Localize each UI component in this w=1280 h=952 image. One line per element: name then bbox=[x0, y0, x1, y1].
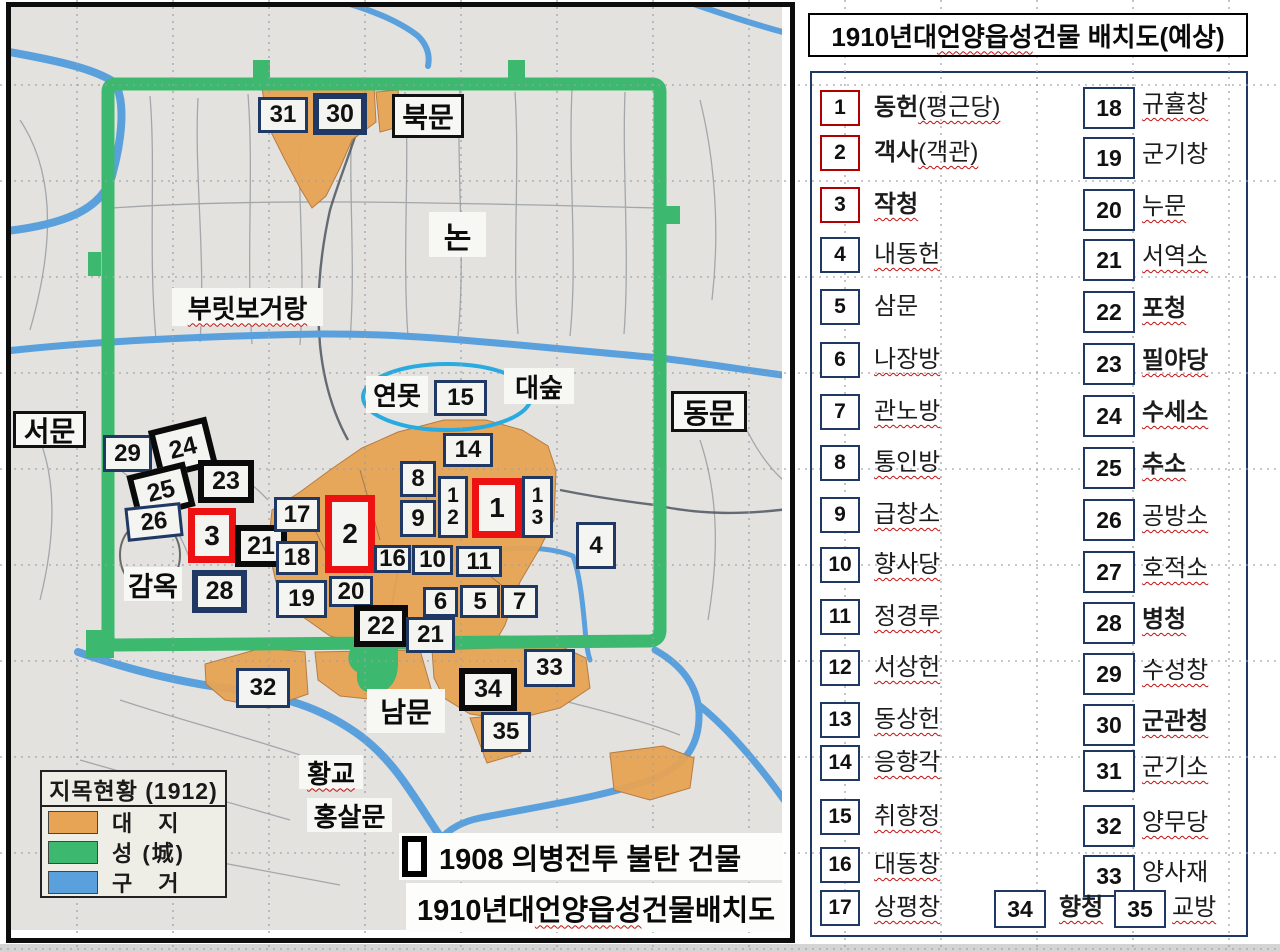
page-bottom-strip bbox=[0, 944, 1280, 952]
building-name: 나장방 bbox=[874, 346, 940, 373]
panel-title: 1910년대 언양읍성 건물 배치도(예상) bbox=[808, 13, 1248, 57]
panel-title-underlined: 언양읍성 bbox=[937, 17, 1033, 54]
caption-burned-buildings: 1908 의병전투 불탄 건물 bbox=[399, 833, 783, 880]
list-number-17: 17 bbox=[820, 890, 860, 926]
list-number-9: 9 bbox=[820, 497, 860, 533]
list-number-13: 13 bbox=[820, 702, 860, 738]
building-name: 규휼창 bbox=[1142, 91, 1208, 118]
map-box-26: 26 bbox=[124, 502, 183, 542]
list-number-24: 24 bbox=[1083, 395, 1135, 437]
list-label-32: 양무당 bbox=[1142, 803, 1208, 843]
list-number-2: 2 bbox=[820, 135, 860, 171]
list-number-29: 29 bbox=[1083, 653, 1135, 695]
list-label-21: 서역소 bbox=[1142, 237, 1208, 277]
map-label-동문: 동문 bbox=[671, 391, 747, 432]
list-label-23: 필야당 bbox=[1142, 341, 1208, 381]
list-number-12: 12 bbox=[820, 650, 860, 686]
legend-title: 지목현황 (1912) bbox=[42, 772, 225, 807]
map-box-4: 4 bbox=[576, 522, 616, 569]
building-name: 서역소 bbox=[1142, 243, 1208, 270]
list-label-34: 향청 bbox=[1059, 888, 1103, 928]
list-label-28: 병청 bbox=[1142, 600, 1186, 640]
list-label-6: 나장방 bbox=[874, 340, 940, 380]
legend-swatch bbox=[48, 811, 98, 834]
map-label-북문: 북문 bbox=[392, 94, 464, 138]
map-label-홍살문: 홍살문 bbox=[307, 798, 392, 832]
legend-row-구 거: 구 거 bbox=[42, 867, 225, 897]
building-name: 내동헌 bbox=[874, 241, 940, 268]
map-label-부릿보거랑: 부릿보거랑 bbox=[172, 288, 323, 326]
map-box-22: 22 bbox=[354, 605, 408, 647]
building-name: 누문 bbox=[1142, 193, 1186, 220]
building-name: 삼문 bbox=[874, 293, 918, 320]
list-number-35: 35 bbox=[1114, 890, 1166, 928]
list-number-27: 27 bbox=[1083, 551, 1135, 593]
map-box-32: 32 bbox=[236, 668, 290, 708]
list-number-5: 5 bbox=[820, 289, 860, 325]
building-name: 교방 bbox=[1172, 894, 1216, 921]
building-name: 객사 bbox=[874, 139, 918, 166]
building-name: 군기소 bbox=[1142, 754, 1208, 781]
list-number-31: 31 bbox=[1083, 750, 1135, 792]
map-box-33: 33 bbox=[524, 649, 575, 687]
list-label-7: 관노방 bbox=[874, 392, 940, 432]
building-name: 향사당 bbox=[874, 551, 940, 578]
building-name: 수성창 bbox=[1142, 657, 1208, 684]
list-number-1: 1 bbox=[820, 90, 860, 126]
building-name: 병청 bbox=[1142, 606, 1186, 633]
list-number-6: 6 bbox=[820, 342, 860, 378]
building-name: 상평창 bbox=[874, 894, 940, 921]
map-label-감옥: 감옥 bbox=[124, 567, 182, 601]
list-number-21: 21 bbox=[1083, 239, 1135, 281]
map-label-text: 논 bbox=[444, 213, 472, 257]
list-label-15: 취향정 bbox=[874, 797, 940, 837]
map-label-대숲: 대숲 bbox=[504, 368, 574, 404]
list-number-11: 11 bbox=[820, 599, 860, 635]
list-label-31: 군기소 bbox=[1142, 748, 1208, 788]
building-name: 추소 bbox=[1142, 451, 1186, 478]
list-number-30: 30 bbox=[1083, 704, 1135, 746]
list-number-28: 28 bbox=[1083, 602, 1135, 644]
list-label-8: 통인방 bbox=[874, 443, 940, 483]
map-box-15: 15 bbox=[434, 380, 487, 416]
map-box-35: 35 bbox=[481, 712, 531, 752]
list-label-20: 누문 bbox=[1142, 187, 1186, 227]
map-box-13: 1 3 bbox=[522, 476, 553, 538]
list-number-18: 18 bbox=[1083, 87, 1135, 129]
map-box-6: 6 bbox=[423, 587, 458, 617]
map-box-29: 29 bbox=[103, 435, 152, 472]
list-label-18: 규휼창 bbox=[1142, 85, 1208, 125]
list-label-11: 정경루 bbox=[874, 597, 940, 637]
map-box-34: 34 bbox=[459, 668, 517, 711]
list-number-22: 22 bbox=[1083, 291, 1135, 333]
list-number-7: 7 bbox=[820, 394, 860, 430]
building-name: 작청 bbox=[874, 191, 918, 218]
list-label-30: 군관청 bbox=[1142, 702, 1208, 742]
map-box-9: 9 bbox=[400, 500, 436, 537]
building-name: 동헌 bbox=[874, 94, 918, 121]
map-label-text: 남문 bbox=[380, 691, 432, 731]
caption-map-title: 1910년대 언양읍성 건물배치도 bbox=[406, 883, 786, 932]
list-number-10: 10 bbox=[820, 547, 860, 583]
list-label-5: 삼문 bbox=[874, 287, 918, 327]
building-name-paren: (평근당) bbox=[918, 94, 1000, 121]
building-name: 수세소 bbox=[1142, 399, 1208, 426]
map-box-1: 1 bbox=[472, 478, 522, 538]
list-number-34: 34 bbox=[994, 890, 1046, 928]
list-label-16: 대동창 bbox=[874, 845, 940, 885]
map-box-16: 16 bbox=[374, 545, 411, 573]
panel-title-suffix: 건물 배치도(예상) bbox=[1033, 17, 1225, 54]
map-box-14: 14 bbox=[443, 433, 493, 467]
list-number-19: 19 bbox=[1083, 137, 1135, 179]
building-name: 통인방 bbox=[874, 449, 940, 476]
list-label-26: 공방소 bbox=[1142, 497, 1208, 537]
list-label-4: 내동헌 bbox=[874, 235, 940, 275]
list-number-23: 23 bbox=[1083, 343, 1135, 385]
map-label-text: 서문 bbox=[24, 410, 76, 450]
list-number-20: 20 bbox=[1083, 189, 1135, 231]
map-box-31: 31 bbox=[258, 97, 308, 133]
map-box-18: 18 bbox=[276, 541, 318, 575]
map-label-text: 대숲 bbox=[515, 368, 563, 405]
list-label-22: 포청 bbox=[1142, 289, 1186, 329]
list-label-14: 응향각 bbox=[874, 743, 940, 783]
map-legend: 지목현황 (1912) 대 지성 (城)구 거 bbox=[40, 770, 227, 898]
burned-building-box-icon bbox=[402, 836, 427, 877]
map-label-연못: 연못 bbox=[366, 376, 428, 413]
map-label-text: 홍살문 bbox=[314, 797, 386, 834]
building-list-panel: 1동헌(평근당)2객사(객관)3작청4내동헌5삼문6나장방7관노방8통인방9급창… bbox=[810, 71, 1248, 937]
panel-title-prefix: 1910년대 bbox=[831, 17, 937, 54]
map-label-text: 황교 bbox=[307, 754, 355, 791]
list-label-17: 상평창 bbox=[874, 888, 940, 928]
building-name: 필야당 bbox=[1142, 347, 1208, 374]
legend-label: 성 (城) bbox=[112, 836, 185, 868]
map-label-서문: 서문 bbox=[13, 411, 86, 448]
building-name: 응향각 bbox=[874, 749, 940, 776]
list-label-27: 호적소 bbox=[1142, 549, 1208, 589]
map-label-남문: 남문 bbox=[367, 689, 445, 733]
map-box-10: 10 bbox=[412, 545, 453, 575]
building-name: 취향정 bbox=[874, 803, 940, 830]
building-name: 향청 bbox=[1059, 894, 1103, 921]
legend-label: 대 지 bbox=[112, 806, 180, 838]
building-name: 포청 bbox=[1142, 295, 1186, 322]
map-box-19: 19 bbox=[276, 580, 327, 618]
map-label-text: 동문 bbox=[683, 392, 735, 432]
list-number-14: 14 bbox=[820, 745, 860, 781]
map-box-17: 17 bbox=[274, 497, 320, 532]
building-name: 서상헌 bbox=[874, 654, 940, 681]
list-label-35: 교방 bbox=[1172, 888, 1216, 928]
map-box-30: 30 bbox=[313, 93, 367, 135]
list-number-4: 4 bbox=[820, 237, 860, 273]
list-number-15: 15 bbox=[820, 799, 860, 835]
building-name: 양사재 bbox=[1142, 859, 1208, 886]
list-label-3: 작청 bbox=[874, 185, 918, 225]
map-box-11: 11 bbox=[456, 546, 502, 577]
caption-layout-suffix: 건물배치도 bbox=[642, 887, 775, 929]
list-label-24: 수세소 bbox=[1142, 393, 1208, 433]
building-name: 양무당 bbox=[1142, 809, 1208, 836]
building-name: 정경루 bbox=[874, 603, 940, 630]
map-box-5: 5 bbox=[460, 585, 500, 618]
map-box-12: 1 2 bbox=[438, 476, 468, 538]
map-box-2: 2 bbox=[325, 495, 375, 573]
list-label-19: 군기창 bbox=[1142, 135, 1208, 175]
building-name-paren: (객관) bbox=[918, 139, 978, 166]
building-name: 공방소 bbox=[1142, 503, 1208, 530]
list-number-32: 32 bbox=[1083, 805, 1135, 847]
map-box-7: 7 bbox=[501, 585, 538, 618]
legend-rows: 대 지성 (城)구 거 bbox=[42, 807, 225, 897]
list-number-26: 26 bbox=[1083, 499, 1135, 541]
building-name: 군관청 bbox=[1142, 708, 1208, 735]
building-name: 급창소 bbox=[874, 501, 940, 528]
map-label-황교: 황교 bbox=[299, 755, 363, 789]
caption-layout-prefix: 1910년대 bbox=[417, 887, 535, 929]
list-label-2: 객사(객관) bbox=[874, 133, 978, 173]
legend-label: 구 거 bbox=[112, 866, 180, 898]
map-label-text: 연못 bbox=[373, 376, 421, 413]
legend-swatch bbox=[48, 841, 98, 864]
list-number-8: 8 bbox=[820, 445, 860, 481]
list-label-33: 양사재 bbox=[1142, 853, 1208, 893]
caption-burned-text: 1908 의병전투 불탄 건물 bbox=[439, 836, 741, 878]
list-number-16: 16 bbox=[820, 847, 860, 883]
map-box-8: 8 bbox=[400, 461, 436, 497]
list-label-10: 향사당 bbox=[874, 545, 940, 585]
list-number-25: 25 bbox=[1083, 447, 1135, 489]
legend-row-성 (城): 성 (城) bbox=[42, 837, 225, 867]
map-box-28: 28 bbox=[192, 570, 247, 613]
legend-row-대 지: 대 지 bbox=[42, 807, 225, 837]
map-label-논: 논 bbox=[429, 212, 486, 257]
list-label-25: 추소 bbox=[1142, 445, 1186, 485]
caption-layout-underlined: 언양읍성 bbox=[535, 887, 642, 929]
building-name: 관노방 bbox=[874, 398, 940, 425]
map-box-23: 23 bbox=[198, 460, 254, 503]
list-label-1: 동헌(평근당) bbox=[874, 88, 1000, 128]
list-label-9: 급창소 bbox=[874, 495, 940, 535]
building-name: 동상헌 bbox=[874, 706, 940, 733]
list-label-13: 동상헌 bbox=[874, 700, 940, 740]
map-label-text: 북문 bbox=[402, 96, 454, 136]
map-box-20: 20 bbox=[329, 576, 373, 607]
legend-swatch bbox=[48, 871, 98, 894]
building-name: 대동창 bbox=[874, 851, 940, 878]
list-label-12: 서상헌 bbox=[874, 648, 940, 688]
list-label-29: 수성창 bbox=[1142, 651, 1208, 691]
map-label-text: 부릿보거랑 bbox=[188, 289, 308, 326]
building-name: 호적소 bbox=[1142, 555, 1208, 582]
map-box-21: 21 bbox=[406, 617, 455, 653]
map-box-3: 3 bbox=[188, 508, 236, 563]
list-number-3: 3 bbox=[820, 187, 860, 223]
map-label-text: 감옥 bbox=[128, 565, 178, 604]
building-name: 군기창 bbox=[1142, 141, 1208, 168]
